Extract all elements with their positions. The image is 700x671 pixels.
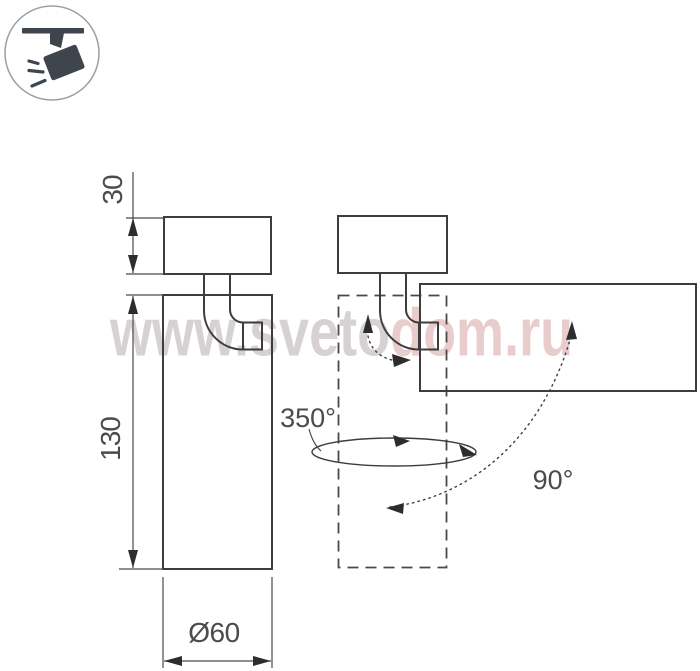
- angle-label-350: 350°: [280, 403, 336, 433]
- phantom-body-outline: [339, 296, 447, 568]
- front-arm-inner-curve: [230, 274, 243, 323]
- drawing-linework: 30 130 Ø60: [0, 0, 700, 671]
- pan-arrowhead-top: [393, 435, 410, 447]
- elbow-arrowhead-right: [392, 354, 411, 367]
- rotated-arm-cap: [419, 323, 438, 350]
- angle-label-90: 90°: [533, 465, 574, 495]
- rotated-mount-box: [338, 216, 447, 273]
- dimension-mount-height: 30: [97, 172, 163, 274]
- rotated-arm-outer-curve: [380, 273, 419, 350]
- rotated-view: [338, 216, 696, 568]
- technical-drawing-canvas: www.svetodom.ru: [0, 0, 700, 671]
- tilt-arrowhead-up: [566, 321, 577, 340]
- dimension-label-30: 30: [97, 175, 128, 205]
- dimension-diameter: Ø60: [163, 577, 272, 668]
- front-view: [163, 217, 272, 569]
- icon-ring: [5, 6, 99, 100]
- front-mount-box: [164, 217, 271, 274]
- rotated-arm-inner-curve: [406, 273, 419, 323]
- front-arm-cap: [243, 323, 262, 350]
- ceiling-spotlight-icon: [5, 6, 99, 100]
- dimension-label-diameter: Ø60: [188, 617, 239, 648]
- tilt-arrowhead-left: [386, 503, 404, 514]
- front-arm-outer-curve: [204, 274, 243, 350]
- icon-light-ray: [29, 71, 43, 73]
- front-body: [163, 295, 272, 569]
- dimension-body-height: 130: [95, 295, 163, 569]
- elbow-swivel-arc: [368, 336, 392, 360]
- dimension-label-130: 130: [95, 417, 126, 461]
- rotated-head: [420, 284, 696, 391]
- icon-ceiling-bar: [22, 28, 84, 34]
- elbow-arrowhead-up: [363, 314, 373, 333]
